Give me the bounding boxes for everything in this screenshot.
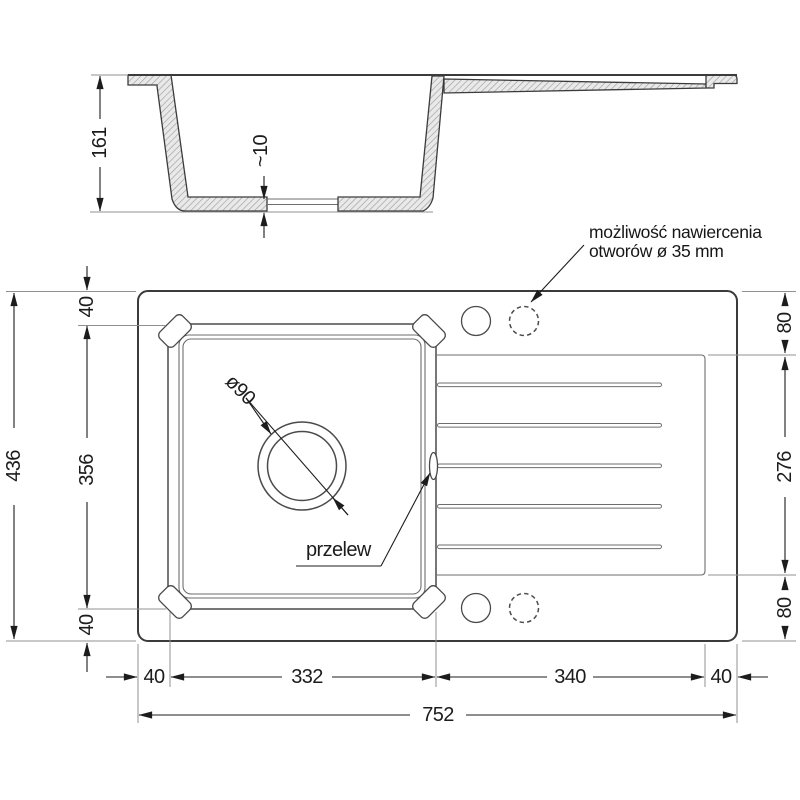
dim-margin-left: 40 bbox=[106, 666, 165, 688]
dim-depth-total: 436 bbox=[3, 293, 25, 639]
dim-margin-right-label: 40 bbox=[710, 666, 732, 688]
dim-side-height-label: 161 bbox=[89, 127, 111, 159]
bowl-corner-pads bbox=[157, 313, 448, 621]
drain-hole: ø90 bbox=[221, 371, 348, 515]
dim-margin-bottom: 40 bbox=[76, 614, 98, 672]
dim-drainer-depth-label: 276 bbox=[774, 451, 796, 483]
dim-width-total: 752 bbox=[139, 704, 736, 726]
faucet-hole-bottom bbox=[462, 594, 491, 623]
drill-note-line1: możliwość nawiercenia bbox=[589, 222, 762, 242]
overflow-label: przelew bbox=[306, 539, 372, 561]
dim-side-height: 161 bbox=[89, 76, 111, 211]
section-right-rim bbox=[706, 75, 737, 88]
dim-drainer-width-label: 340 bbox=[554, 666, 586, 688]
dimensions-bottom: 40 332 340 40 752 bbox=[106, 612, 768, 726]
faucet-hole-top bbox=[462, 307, 491, 336]
drainer-grooves bbox=[438, 383, 662, 549]
dim-bottom-thickness: ~10 bbox=[250, 134, 272, 238]
dim-drainer-width: 340 bbox=[437, 666, 704, 688]
dimensions-left: 436 40 356 40 bbox=[3, 266, 166, 672]
section-drainer-strip bbox=[444, 79, 706, 93]
dim-drainer-depth: 276 bbox=[774, 357, 796, 573]
dim-hole-offset-bottom-label: 80 bbox=[774, 597, 796, 619]
dim-bowl-width: 332 bbox=[171, 666, 435, 688]
dim-hole-offset-top-label: 80 bbox=[774, 312, 796, 334]
bowl bbox=[157, 313, 448, 621]
optional-hole-bottom bbox=[510, 594, 539, 623]
side-section-view: 161 ~10 bbox=[89, 75, 737, 238]
sink-technical-drawing: 161 ~10 bbox=[0, 0, 800, 800]
section-left-wall bbox=[128, 75, 267, 211]
dim-drain-diameter-label: ø90 bbox=[221, 371, 260, 410]
optional-hole-top bbox=[510, 307, 539, 336]
dim-depth-total-label: 436 bbox=[3, 450, 25, 482]
overflow-slot bbox=[430, 453, 438, 480]
dim-hole-offset-top: 80 bbox=[774, 293, 796, 353]
section-right-wall bbox=[338, 76, 444, 211]
dim-margin-top-label: 40 bbox=[76, 296, 98, 318]
drawing-canvas: 161 ~10 bbox=[0, 0, 800, 800]
dim-margin-left-label: 40 bbox=[143, 666, 165, 688]
drill-note-line2: otworów ø 35 mm bbox=[589, 241, 724, 261]
dim-margin-bottom-label: 40 bbox=[76, 614, 98, 636]
overflow: przelew bbox=[296, 453, 438, 567]
plan-view: ø90 przelew możliwość nawiercenia otworó… bbox=[138, 222, 762, 641]
dim-bowl-width-label: 332 bbox=[291, 666, 323, 688]
dim-width-total-label: 752 bbox=[422, 704, 454, 726]
dimensions-right: 80 276 80 bbox=[708, 292, 796, 642]
dim-bowl-depth: 356 bbox=[76, 326, 98, 608]
dim-margin-right: 40 bbox=[710, 666, 768, 688]
dim-bottom-thickness-label: ~10 bbox=[250, 134, 272, 167]
dim-hole-offset-bottom: 80 bbox=[774, 577, 796, 639]
dim-bowl-depth-label: 356 bbox=[76, 454, 98, 486]
